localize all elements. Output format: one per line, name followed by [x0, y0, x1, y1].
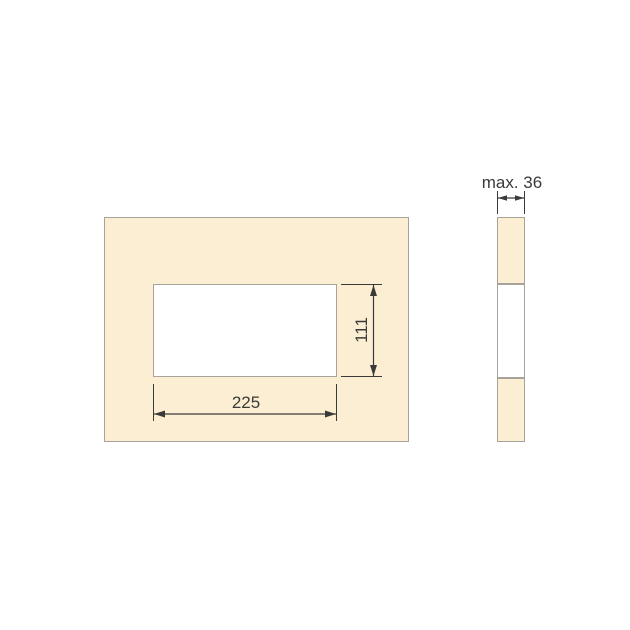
- thickness-dim-arrow-right-icon: [515, 195, 524, 201]
- thickness-dim-arrow-left-icon: [498, 195, 507, 201]
- technical-drawing-canvas: 225 111 max. 36: [0, 0, 630, 630]
- side-view-top-section: [498, 218, 524, 285]
- panel-side-view: [497, 217, 525, 442]
- thickness-dimension-label: max. 36: [482, 173, 542, 192]
- panel-cutout-opening: [153, 284, 337, 377]
- side-view-middle-section: [498, 285, 524, 377]
- side-view-bottom-section: [498, 377, 524, 441]
